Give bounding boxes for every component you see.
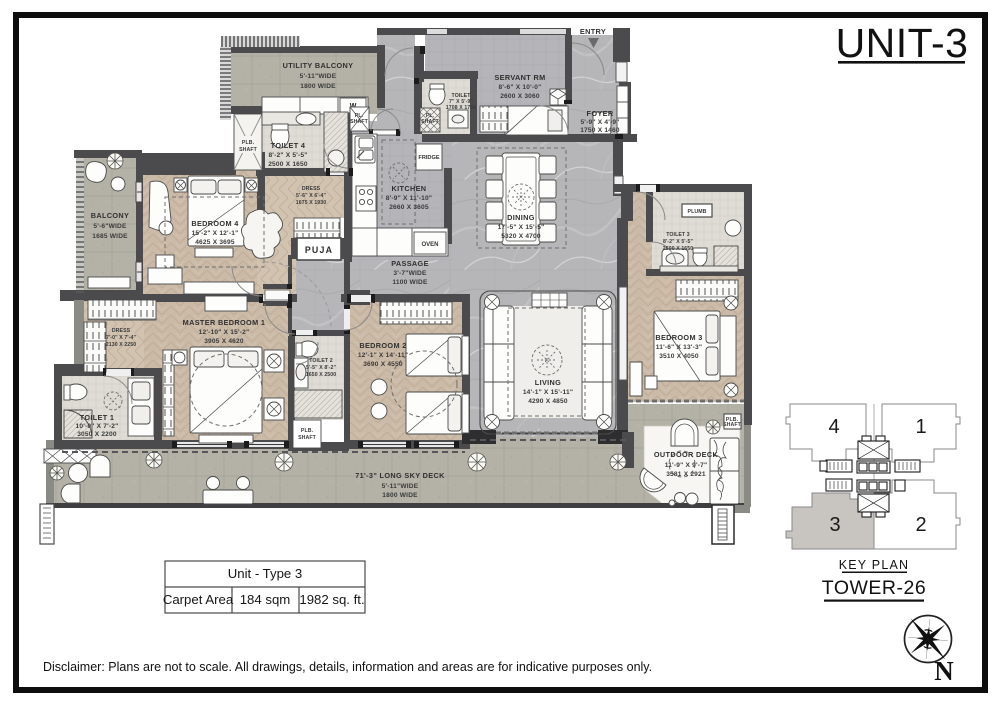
svg-text:2660 X 3605: 2660 X 3605 [389,204,429,211]
svg-text:1982 sq. ft.: 1982 sq. ft. [299,592,364,607]
svg-text:3'-7"WIDE: 3'-7"WIDE [393,270,427,277]
svg-text:BEDROOM 2: BEDROOM 2 [359,341,406,350]
svg-text:3: 3 [829,514,840,536]
svg-text:DINING: DINING [507,213,535,222]
svg-text:5'-6" X 6'-4": 5'-6" X 6'-4" [296,193,326,199]
svg-text:SHAFT: SHAFT [723,422,742,428]
svg-text:PUJA: PUJA [305,245,333,255]
svg-text:SHAFT: SHAFT [298,435,317,441]
svg-text:2: 2 [915,514,926,536]
svg-text:7'-0" X 7'-4": 7'-0" X 7'-4" [106,335,136,341]
svg-text:3690 X 4550: 3690 X 4550 [363,361,403,368]
svg-text:PLB.: PLB. [242,140,255,146]
svg-text:1685 WIDE: 1685 WIDE [92,233,128,240]
svg-text:71'-3" LONG SKY DECK: 71'-3" LONG SKY DECK [355,471,445,480]
svg-text:1: 1 [915,416,926,438]
svg-text:DRESS: DRESS [112,328,131,334]
svg-text:3581 X 2921: 3581 X 2921 [666,471,706,478]
svg-text:11'-6" X 13'-3": 11'-6" X 13'-3" [656,344,702,351]
svg-text:KITCHEN: KITCHEN [392,184,427,193]
svg-text:5'-5" X 8'-2": 5'-5" X 8'-2" [306,365,336,371]
svg-text:TOILET 1: TOILET 1 [80,413,115,422]
svg-text:5320 X 4700: 5320 X 4700 [501,233,541,240]
svg-text:SHAFT: SHAFT [350,119,369,125]
svg-text:TOILET 4: TOILET 4 [271,141,306,150]
svg-text:3510 X 4050: 3510 X 4050 [659,353,699,360]
svg-text:Unit - Type 3: Unit - Type 3 [228,566,303,581]
svg-text:12'-1" X 14'-11": 12'-1" X 14'-11" [358,352,408,359]
svg-text:1750 X 1460: 1750 X 1460 [580,127,620,134]
svg-text:5'-6"WIDE: 5'-6"WIDE [93,223,127,230]
svg-text:184 sqm: 184 sqm [240,592,291,607]
svg-text:BEDROOM 4: BEDROOM 4 [191,219,239,228]
svg-text:1650 X 2500: 1650 X 2500 [306,372,337,378]
svg-text:2500 X 1650: 2500 X 1650 [663,246,694,252]
svg-text:UNIT-3: UNIT-3 [836,20,969,66]
svg-text:8'-6" X 10'-0": 8'-6" X 10'-0" [499,84,542,91]
svg-text:TOWER-26: TOWER-26 [822,577,926,599]
svg-text:UTILITY BALCONY: UTILITY BALCONY [283,61,354,70]
svg-text:PLB.: PLB. [301,428,314,434]
svg-text:8'-2" X 5'-5": 8'-2" X 5'-5" [268,152,307,159]
svg-text:OVEN: OVEN [421,242,438,248]
svg-text:2600 X 3060: 2600 X 3060 [500,93,540,100]
svg-text:BALCONY: BALCONY [91,211,130,220]
svg-text:1800 WIDE: 1800 WIDE [382,492,418,499]
svg-text:MASTER BEDROOM 1: MASTER BEDROOM 1 [183,318,266,327]
svg-text:10'-0" X 7'-2": 10'-0" X 7'-2" [76,423,119,430]
svg-text:FRIDGE: FRIDGE [418,155,439,161]
svg-text:LIVING: LIVING [535,378,561,387]
svg-text:TOILET 2: TOILET 2 [309,358,332,364]
svg-text:1675 X 1930: 1675 X 1930 [296,200,327,206]
svg-text:Carpet Area: Carpet Area [163,592,234,607]
svg-text:2500 X 1650: 2500 X 1650 [268,161,308,168]
svg-text:FOYER: FOYER [587,109,614,118]
svg-text:12'-10" X 15'-2": 12'-10" X 15'-2" [199,329,250,336]
svg-text:14'-1" X 15'-11": 14'-1" X 15'-11" [523,389,573,396]
svg-text:ENTRY: ENTRY [580,27,606,36]
svg-text:OUTDOOR DECK: OUTDOOR DECK [654,450,719,459]
svg-text:1708 X 1760: 1708 X 1760 [446,105,477,111]
svg-text:SHAFT: SHAFT [421,119,440,125]
svg-text:11'-9" X 9'-7": 11'-9" X 9'-7" [665,462,708,469]
svg-text:KEY PLAN: KEY PLAN [839,558,910,572]
svg-text:4: 4 [828,416,839,438]
svg-text:DRESS: DRESS [302,186,321,192]
svg-text:5'-11"WIDE: 5'-11"WIDE [300,73,337,80]
svg-text:15'-2" X 12'-1": 15'-2" X 12'-1" [192,230,239,237]
svg-text:PLUMB: PLUMB [688,209,707,215]
svg-text:TOILET 3: TOILET 3 [666,232,689,238]
svg-text:4625 X 3695: 4625 X 3695 [195,239,235,246]
svg-text:1800 WIDE: 1800 WIDE [300,83,336,90]
svg-text:17'-5" X 15'-5": 17'-5" X 15'-5" [498,224,545,231]
svg-text:5'-9" X 4'-9": 5'-9" X 4'-9" [580,119,619,126]
svg-text:4290 X 4850: 4290 X 4850 [528,398,568,405]
svg-text:8'-9" X 11'-10": 8'-9" X 11'-10" [386,195,432,202]
svg-text:PASSAGE: PASSAGE [391,259,429,268]
svg-text:8'-2" X 5'-5": 8'-2" X 5'-5" [663,239,693,245]
svg-text:BEDROOM 3: BEDROOM 3 [655,333,702,342]
svg-text:N: N [934,656,954,686]
svg-text:3905 X 4620: 3905 X 4620 [204,338,244,345]
svg-text:5'-11"WIDE: 5'-11"WIDE [382,483,419,490]
svg-text:SERVANT RM: SERVANT RM [494,73,545,82]
svg-text:SHAFT: SHAFT [239,147,258,153]
svg-text:1100 WIDE: 1100 WIDE [392,279,428,286]
svg-text:2130 X 2250: 2130 X 2250 [106,342,137,348]
svg-text:3050 X 2200: 3050 X 2200 [77,431,117,438]
svg-text:Disclaimer: Plans are not to s: Disclaimer: Plans are not to scale. All … [43,660,652,674]
